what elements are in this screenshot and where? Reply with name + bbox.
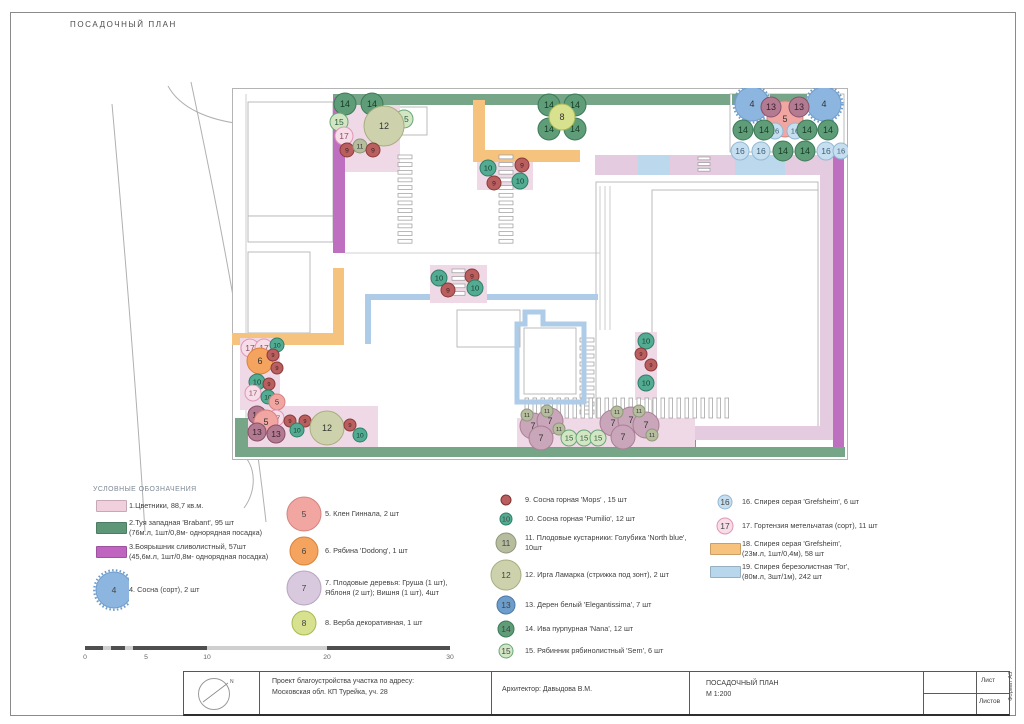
legend-item-15: 1515. Рябинник рябинолистный 'Sem', 6 шт [487, 641, 686, 661]
plant-circle-label: 10 [293, 427, 301, 434]
legend-circle-number: 16 [720, 497, 730, 507]
legend-marker: 10 [487, 510, 525, 528]
legend-circle-number: 4 [112, 584, 117, 594]
legend-circle-marker: 12 [488, 557, 524, 593]
step-rung [499, 193, 513, 197]
legend-circle-marker: 11 [493, 530, 519, 556]
legend-item-line: 8. Верба декоративная, 1 шт [325, 618, 422, 628]
plant-circle-label: 11 [357, 143, 364, 150]
deck-slat [589, 398, 593, 418]
planting-band [365, 294, 371, 344]
scalebar-segment [103, 646, 111, 650]
step-rung [499, 209, 513, 213]
plant-circle-label: 12 [322, 423, 332, 433]
deck-slat [717, 398, 721, 418]
step-rung [499, 163, 513, 167]
legend-item-line: 7. Плодовые деревья: Груша (1 шт), [325, 578, 448, 588]
deck-slat [669, 398, 673, 418]
titleblock-divider [491, 672, 492, 714]
plant-circle-label: 9 [492, 180, 496, 187]
step-rung [398, 239, 412, 243]
legend-circle-number: 15 [501, 646, 511, 656]
legend-swatch-marker [93, 546, 129, 558]
legend-item-line: (45,6м.л, 1шт/0,8м- однорядная посадка) [129, 552, 268, 562]
plant-circle-label: 4 [749, 99, 754, 109]
legend-circle-number: 5 [302, 509, 307, 519]
legend-circle-marker: 17 [714, 515, 736, 537]
legend-item-4: 44. Сосна (сорт), 2 шт [93, 569, 268, 611]
scalebar-label: 5 [144, 654, 148, 661]
step-rung [499, 224, 513, 228]
step-rung [499, 155, 513, 159]
drawing-scale: М 1:200 [706, 690, 779, 701]
building-room [524, 328, 576, 394]
legend-item: 2.Туя западная 'Brabant', 95 шт(76м.л, 1… [93, 518, 268, 537]
plant-circle-label: 16 [821, 146, 831, 156]
plant-circle-label: 7 [643, 420, 648, 430]
plant-circle-label: 14 [738, 125, 748, 135]
legend-swatch [96, 522, 127, 534]
plant-circle-label: 14 [759, 125, 769, 135]
plant-circle-label: 9 [371, 147, 375, 154]
title-block: N Проект благоустройства участка по адре… [183, 671, 1010, 716]
legend-item-text: 8. Верба декоративная, 1 шт [325, 618, 422, 628]
scalebar-segment [111, 646, 125, 650]
legend-item-line: 13. Дерен белый 'Elegantissima', 7 шт [525, 600, 651, 610]
plant-circle-label: 5 [275, 398, 279, 407]
legend-item-line: 11. Плодовые кустарники: Голубика 'North… [525, 533, 686, 543]
legend-marker: 13 [487, 593, 525, 617]
step-rung [398, 170, 412, 174]
architect-name: Архитектор: Давыдова В.М. [502, 685, 592, 696]
plant-circle-label: 10 [273, 342, 281, 349]
titleblock-divider [259, 672, 260, 714]
legend-circle-number: 6 [302, 546, 307, 556]
legend-circle [501, 495, 511, 505]
plant-circle-label: 16 [837, 147, 845, 156]
legend-circle-marker: 14 [495, 618, 517, 640]
project-address-line1: Проект благоустройства участка по адресу… [272, 677, 414, 688]
legend-item-8: 88. Верба декоративная, 1 шт [283, 608, 448, 638]
legend-item-line: 17. Гортензия метельчатая (сорт), 11 шт [742, 521, 878, 531]
titleblock-divider [923, 693, 1009, 694]
scalebar-label: 10 [203, 654, 211, 661]
legend-item-line: 12. Ирга Ламарка (стрижка под зонт), 2 ш… [525, 570, 669, 580]
plant-circle-label: 10 [516, 177, 524, 186]
planting-band [595, 155, 638, 175]
plant-circle-label: 9 [348, 423, 351, 429]
legend-circle-number: 11 [502, 538, 511, 548]
step-rung [398, 216, 412, 220]
plant-circle-label: 7 [610, 418, 615, 428]
plant-circle-label: 7 [547, 416, 552, 426]
plant-circle-label: 10 [435, 274, 443, 283]
step-rung [698, 168, 710, 171]
legend-item-text: 12. Ирга Ламарка (стрижка под зонт), 2 ш… [525, 570, 669, 580]
plant-circle-label: 14 [823, 125, 833, 135]
legend-circle-marker: 16 [715, 492, 735, 512]
legend-item-text: 19. Спирея березолистная 'Tor',(80м.л, 3… [742, 562, 849, 581]
plant-circle-label: 6 [257, 356, 262, 366]
plant-circle-label: 9 [639, 352, 642, 358]
legend-marker: 7 [283, 568, 325, 608]
plant-circle-label: 11 [636, 409, 642, 415]
legend-item-text: 18. Спирея серая 'Grefsheim',(23м.л, 1шт… [742, 539, 842, 558]
legend-circle-marker: 8 [289, 608, 319, 638]
legend-item-11: 1111. Плодовые кустарники: Голубика 'Nor… [487, 530, 686, 556]
legend-item-line: 9. Сосна горная 'Mops' , 15 шт [525, 495, 627, 505]
legend-marker: 17 [708, 515, 742, 537]
step-rung [398, 163, 412, 167]
step-rung [398, 201, 412, 205]
legend-item-line: 19. Спирея березолистная 'Tor', [742, 562, 849, 572]
legend-item-text: 17. Гортензия метельчатая (сорт), 11 шт [742, 521, 878, 531]
deck-slat [685, 398, 689, 418]
plant-circle-label: 4 [821, 99, 826, 109]
legend-item-line: 5. Клен Гиннала, 2 шт [325, 509, 399, 519]
legend-item-13: 1313. Дерен белый 'Elegantissima', 7 шт [487, 593, 686, 617]
plant-circle-label: 15 [565, 434, 573, 443]
legend-circle-number: 14 [501, 624, 511, 634]
plant-circle-label: 16 [756, 146, 766, 156]
legend-circle-marker: 15 [496, 641, 516, 661]
legend-item-line: 18. Спирея серая 'Grefsheim', [742, 539, 842, 549]
page-title: ПОСАДОЧНЫЙ ПЛАН [70, 20, 177, 29]
legend-item-text: 14. Ива пурпурная 'Nana', 12 шт [525, 624, 633, 634]
plant-circle-label: 16 [735, 146, 745, 156]
scalebar-label: 20 [323, 654, 331, 661]
deck-slat [725, 398, 729, 418]
legend-circle-number: 10 [502, 515, 510, 524]
deck-slat [661, 398, 665, 418]
planting-band [690, 426, 833, 440]
scalebar-segment [327, 646, 450, 650]
plant-circle-label: 10 [642, 337, 650, 346]
plant-circle-label: 9 [470, 273, 474, 280]
deck-slat [701, 398, 705, 418]
legend-swatch-marker [708, 566, 742, 578]
scalebar-segment [85, 646, 103, 650]
plant-circle-label: 5 [263, 417, 268, 427]
plant-circle-label: 5 [782, 114, 787, 124]
deck-slat [677, 398, 681, 418]
legend-item-text: 7. Плодовые деревья: Груша (1 шт),Яблоня… [325, 578, 448, 597]
legend-circle-marker [498, 492, 514, 508]
step-rung [499, 201, 513, 205]
plant-circle-label: 9 [303, 419, 306, 425]
legend-swatch-marker [93, 522, 129, 534]
plant-circle-label: 10 [356, 432, 364, 439]
step-rung [499, 170, 513, 174]
step-rung [398, 224, 412, 228]
scalebar-segment [133, 646, 207, 650]
sheet-label: Лист [981, 677, 995, 684]
legend-item-text: 4. Сосна (сорт), 2 шт [129, 585, 199, 595]
step-rung [499, 186, 513, 190]
step-rung [452, 277, 465, 281]
legend-marker: 8 [283, 608, 325, 638]
plant-circle-label: 11 [614, 410, 620, 416]
legend-circle-number: 13 [501, 600, 511, 610]
legend-item-10: 1010. Сосна горная 'Pumilio', 12 шт [487, 510, 686, 528]
legend-circle-marker: 7 [284, 568, 324, 608]
scalebar-label: 0 [83, 654, 87, 661]
legend-circle-marker: 4 [93, 569, 129, 611]
plant-circle-label: 17 [249, 389, 257, 398]
plant-circle-label: 11 [524, 413, 530, 419]
plant-circle-label: 9 [267, 382, 270, 388]
drawing-name: ПОСАДОЧНЫЙ ПЛАН М 1:200 [706, 679, 779, 700]
legend-circle-number: 7 [302, 583, 307, 593]
plant-circle-label: 9 [649, 363, 652, 369]
legend-marker: 11 [487, 530, 525, 556]
scalebar-segment [125, 646, 133, 650]
plant-circle-label: 9 [345, 147, 349, 154]
building-room [248, 252, 310, 333]
building-room [652, 190, 818, 428]
legend-item-line: Яблоня (2 шт); Вишня (1 шт), 4шт [325, 588, 448, 598]
plant-circle-label: 9 [271, 353, 274, 359]
plant-circle-label: 11 [649, 433, 655, 439]
legend-item-line: 10. Сосна горная 'Pumilio', 12 шт [525, 514, 635, 524]
legend-item-text: 3.Боярышник сливолистный, 57шт(45,6м.л, … [129, 542, 268, 561]
plant-circle-label: 10 [484, 164, 492, 173]
scalebar-segment [207, 646, 327, 650]
plant-circle-label: 14 [778, 146, 788, 156]
step-rung [499, 239, 513, 243]
step-rung [398, 193, 412, 197]
deck-slat [693, 398, 697, 418]
plant-circle-label: 11 [556, 427, 562, 433]
legend-swatch-marker [93, 500, 129, 512]
planting-band [833, 152, 844, 448]
legend-circle-number: 8 [302, 618, 307, 628]
plant-circle-label: 15 [334, 117, 344, 127]
legend-swatch-marker [708, 543, 742, 555]
steps [698, 157, 710, 171]
step-rung [398, 155, 412, 159]
plant-circle-label: 10 [471, 284, 479, 293]
step-rung [398, 232, 412, 236]
step-rung [398, 186, 412, 190]
legend-item: 3.Боярышник сливолистный, 57шт(45,6м.л, … [93, 542, 268, 561]
project-address-line2: Московская обл. КП Турейка, уч. 28 [272, 688, 414, 699]
plant-circle-label: 14 [340, 99, 350, 109]
legend-item-17: 1717. Гортензия метельчатая (сорт), 11 ш… [708, 515, 878, 537]
legend-item-line: 2.Туя западная 'Brabant', 95 шт [129, 518, 262, 528]
legend-heading: УСЛОВНЫЕ ОБОЗНАЧЕНИЯ [93, 486, 268, 493]
planting-band [333, 94, 730, 105]
north-arrow-icon: N [192, 674, 242, 714]
legend-swatch [96, 546, 127, 558]
legend-circle-marker: 5 [284, 494, 324, 534]
plant-circle-label: 10 [642, 379, 650, 388]
plant-circle-label: 9 [446, 287, 450, 294]
format-label: Формат А3 [1008, 658, 1016, 714]
legend-item-9: 9. Сосна горная 'Mops' , 15 шт [487, 492, 686, 508]
plant-circle-label: 7 [538, 433, 543, 443]
legend-item-text: 10. Сосна горная 'Pumilio', 12 шт [525, 514, 635, 524]
legend-marker: 4 [93, 569, 129, 611]
plant-circle-label: 15 [580, 434, 588, 443]
legend-item-text: 15. Рябинник рябинолистный 'Sem', 6 шт [525, 646, 663, 656]
titleblock-divider [689, 672, 690, 714]
legend-item-5: 55. Клен Гиннала, 2 шт [283, 494, 448, 534]
legend-item-7: 77. Плодовые деревья: Груша (1 шт),Яблон… [283, 568, 448, 608]
building-room [248, 102, 333, 216]
step-rung [398, 209, 412, 213]
legend-circle-marker: 6 [287, 534, 321, 568]
legend-marker: 5 [283, 494, 325, 534]
legend-item-line: (23м.л, 1шт/0,4м), 58 шт [742, 549, 842, 559]
planting-band [235, 418, 248, 449]
step-rung [499, 232, 513, 236]
planting-band [638, 155, 670, 175]
plant-circle-label: 13 [794, 102, 804, 112]
legend-item-text: 5. Клен Гиннала, 2 шт [325, 509, 399, 519]
drawing-title-text: ПОСАДОЧНЫЙ ПЛАН [706, 679, 779, 690]
legend-item-16: 1616. Спирея серая 'Grefsheim', 6 шт [708, 492, 878, 512]
legend-item-text: 9. Сосна горная 'Mops' , 15 шт [525, 495, 627, 505]
legend-item-text: 13. Дерен белый 'Elegantissima', 7 шт [525, 600, 651, 610]
legend-item-text: 11. Плодовые кустарники: Голубика 'North… [525, 533, 686, 552]
plant-circle-label: 8 [559, 112, 564, 122]
plant-circle-label: 13 [271, 429, 281, 439]
legend-item: 1.Цветники, 88,7 кв.м. [93, 500, 268, 512]
legend-circle-marker: 13 [494, 593, 518, 617]
legend-circle-number: 12 [501, 570, 511, 580]
legend-item-line: 4. Сосна (сорт), 2 шт [129, 585, 199, 595]
plant-circle-label: 17 [339, 131, 349, 141]
planting-band [820, 175, 833, 427]
legend-marker: 12 [487, 557, 525, 593]
plant-circle-label: 9 [520, 162, 524, 169]
legend-item-line: (80м.л, 3шт/1м), 242 шт [742, 572, 849, 582]
legend-item-text: 2.Туя западная 'Brabant', 95 шт(76м.л, 1… [129, 518, 262, 537]
legend-item-line: 16. Спирея серая 'Grefsheim', 6 шт [742, 497, 859, 507]
legend-item-line: 14. Ива пурпурная 'Nana', 12 шт [525, 624, 633, 634]
building-room [457, 310, 520, 347]
plant-circle-label: 14 [800, 146, 810, 156]
step-rung [452, 269, 465, 273]
legend-item-text: 16. Спирея серая 'Grefsheim', 6 шт [742, 497, 859, 507]
plant-circle-label: 12 [379, 121, 389, 131]
legend-marker: 16 [708, 492, 742, 512]
legend-item-line: 15. Рябинник рябинолистный 'Sem', 6 шт [525, 646, 663, 656]
legend-circle-marker: 10 [497, 510, 515, 528]
step-rung [398, 178, 412, 182]
legend-item-line: 3.Боярышник сливолистный, 57шт [129, 542, 268, 552]
legend-marker: 6 [283, 534, 325, 568]
legend-circle-number: 17 [720, 521, 730, 531]
legend-swatch [96, 500, 127, 512]
legend-item-line: 6. Рябина 'Dodong', 1 шт [325, 546, 408, 556]
sheets-label: Листов [979, 698, 1000, 705]
legend-swatch [710, 543, 741, 555]
step-rung [698, 163, 710, 166]
legend-marker [487, 492, 525, 508]
legend-item: 18. Спирея серая 'Grefsheim',(23м.л, 1шт… [708, 539, 878, 558]
legend-marker: 14 [487, 618, 525, 640]
plant-circle-label: 13 [766, 102, 776, 112]
legend-item-12: 1212. Ирга Ламарка (стрижка под зонт), 2… [487, 557, 686, 593]
legend-swatch [710, 566, 741, 578]
plant-circle-label: 11 [544, 409, 550, 415]
legend-item-text: 1.Цветники, 88,7 кв.м. [129, 501, 203, 511]
plant-circle-label: 9 [275, 366, 278, 372]
plant-circle-label: 15 [594, 434, 602, 443]
legend-item-14: 1414. Ива пурпурная 'Nana', 12 шт [487, 618, 686, 640]
legend-item: 19. Спирея березолистная 'Tor',(80м.л, 3… [708, 562, 878, 581]
scalebar-label: 30 [446, 654, 454, 661]
legend-item-6: 66. Рябина 'Dodong', 1 шт [283, 534, 448, 568]
legend-marker: 15 [487, 641, 525, 661]
step-rung [698, 157, 710, 160]
plant-circle-label: 14 [802, 125, 812, 135]
building-room [248, 216, 333, 242]
plant-circle-label: 13 [252, 427, 262, 437]
legend-item-line: (76м.л, 1шт/0,8м- однорядная посадка) [129, 528, 262, 538]
deck-slat [597, 398, 601, 418]
project-address: Проект благоустройства участка по адресу… [272, 677, 414, 698]
legend-item-line: 10шт [525, 543, 686, 553]
planting-plan-canvas: 1414151512179119141414148445131316161414… [232, 88, 848, 460]
legend-item-text: 6. Рябина 'Dodong', 1 шт [325, 546, 408, 556]
deck-slat [709, 398, 713, 418]
step-rung [499, 216, 513, 220]
north-label: N [230, 679, 234, 685]
plant-circle-label: 9 [288, 419, 291, 425]
legend-item-line: 1.Цветники, 88,7 кв.м. [129, 501, 203, 511]
plant-circle-label: 7 [620, 432, 625, 442]
